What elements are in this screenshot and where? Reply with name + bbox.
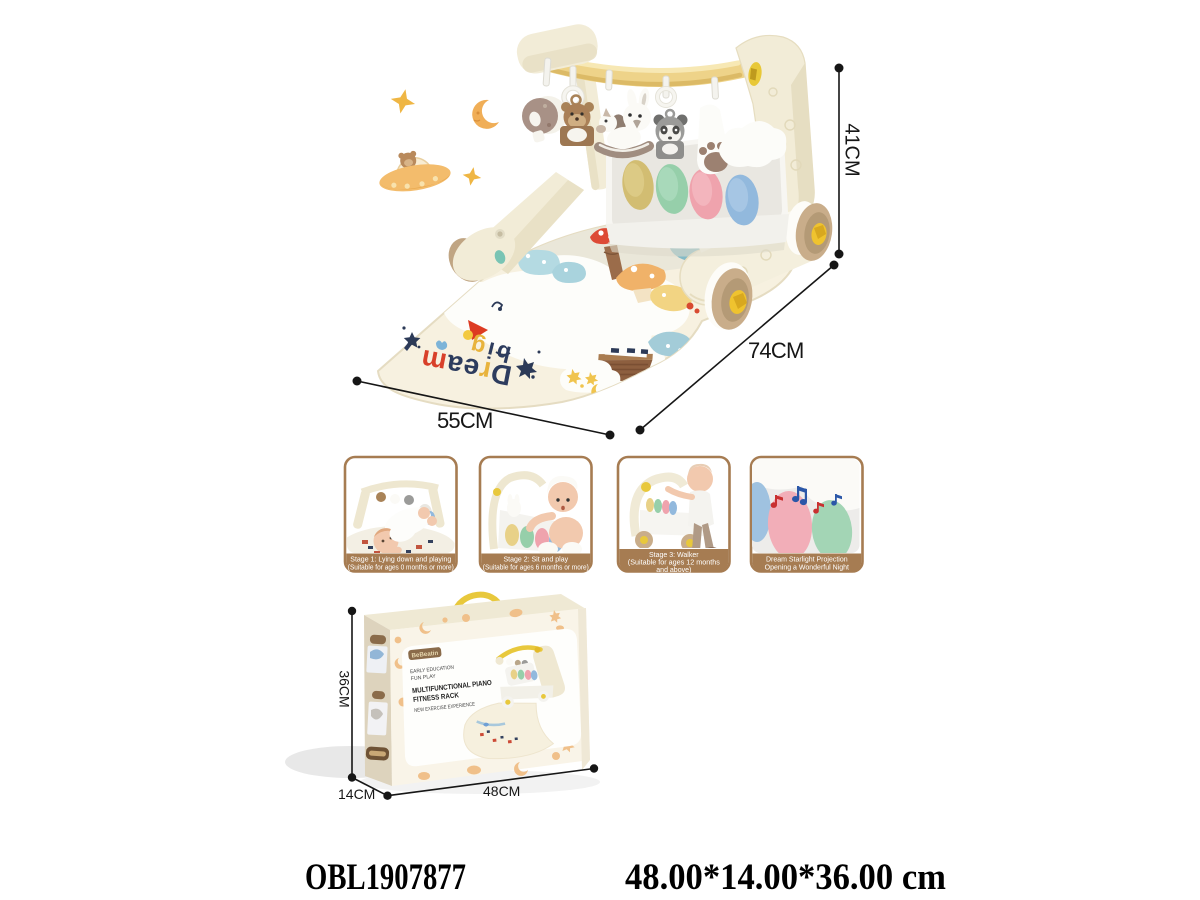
svg-text:41CM: 41CM xyxy=(841,123,863,176)
svg-text:Stage 3: Walker: Stage 3: Walker xyxy=(649,552,699,559)
svg-text:48.00*14.00*36.00 cm: 48.00*14.00*36.00 cm xyxy=(625,857,946,898)
svg-text:(Suitable for ages 6 months or: (Suitable for ages 6 months or more) xyxy=(483,565,589,572)
svg-text:(Suitable for ages 12 months: (Suitable for ages 12 months xyxy=(628,560,721,567)
svg-text:Stage 1: Lying down and playin: Stage 1: Lying down and playing xyxy=(350,557,451,564)
svg-text:14CM: 14CM xyxy=(338,786,375,802)
svg-text:48CM: 48CM xyxy=(483,783,520,799)
svg-text:OBL1907877: OBL1907877 xyxy=(305,857,466,898)
svg-text:74CM: 74CM xyxy=(748,338,804,363)
svg-text:36CM: 36CM xyxy=(336,670,352,707)
svg-text:and above): and above) xyxy=(656,567,691,574)
svg-text:Stage 2: Sit and play: Stage 2: Sit and play xyxy=(503,557,568,564)
svg-text:Opening a Wonderful Night: Opening a Wonderful Night xyxy=(765,565,849,572)
svg-text:55CM: 55CM xyxy=(437,408,493,433)
svg-text:(Suitable for ages 0 months or: (Suitable for ages 0 months or more) xyxy=(348,565,454,572)
svg-text:Dream Starlight Projection: Dream Starlight Projection xyxy=(766,557,848,564)
